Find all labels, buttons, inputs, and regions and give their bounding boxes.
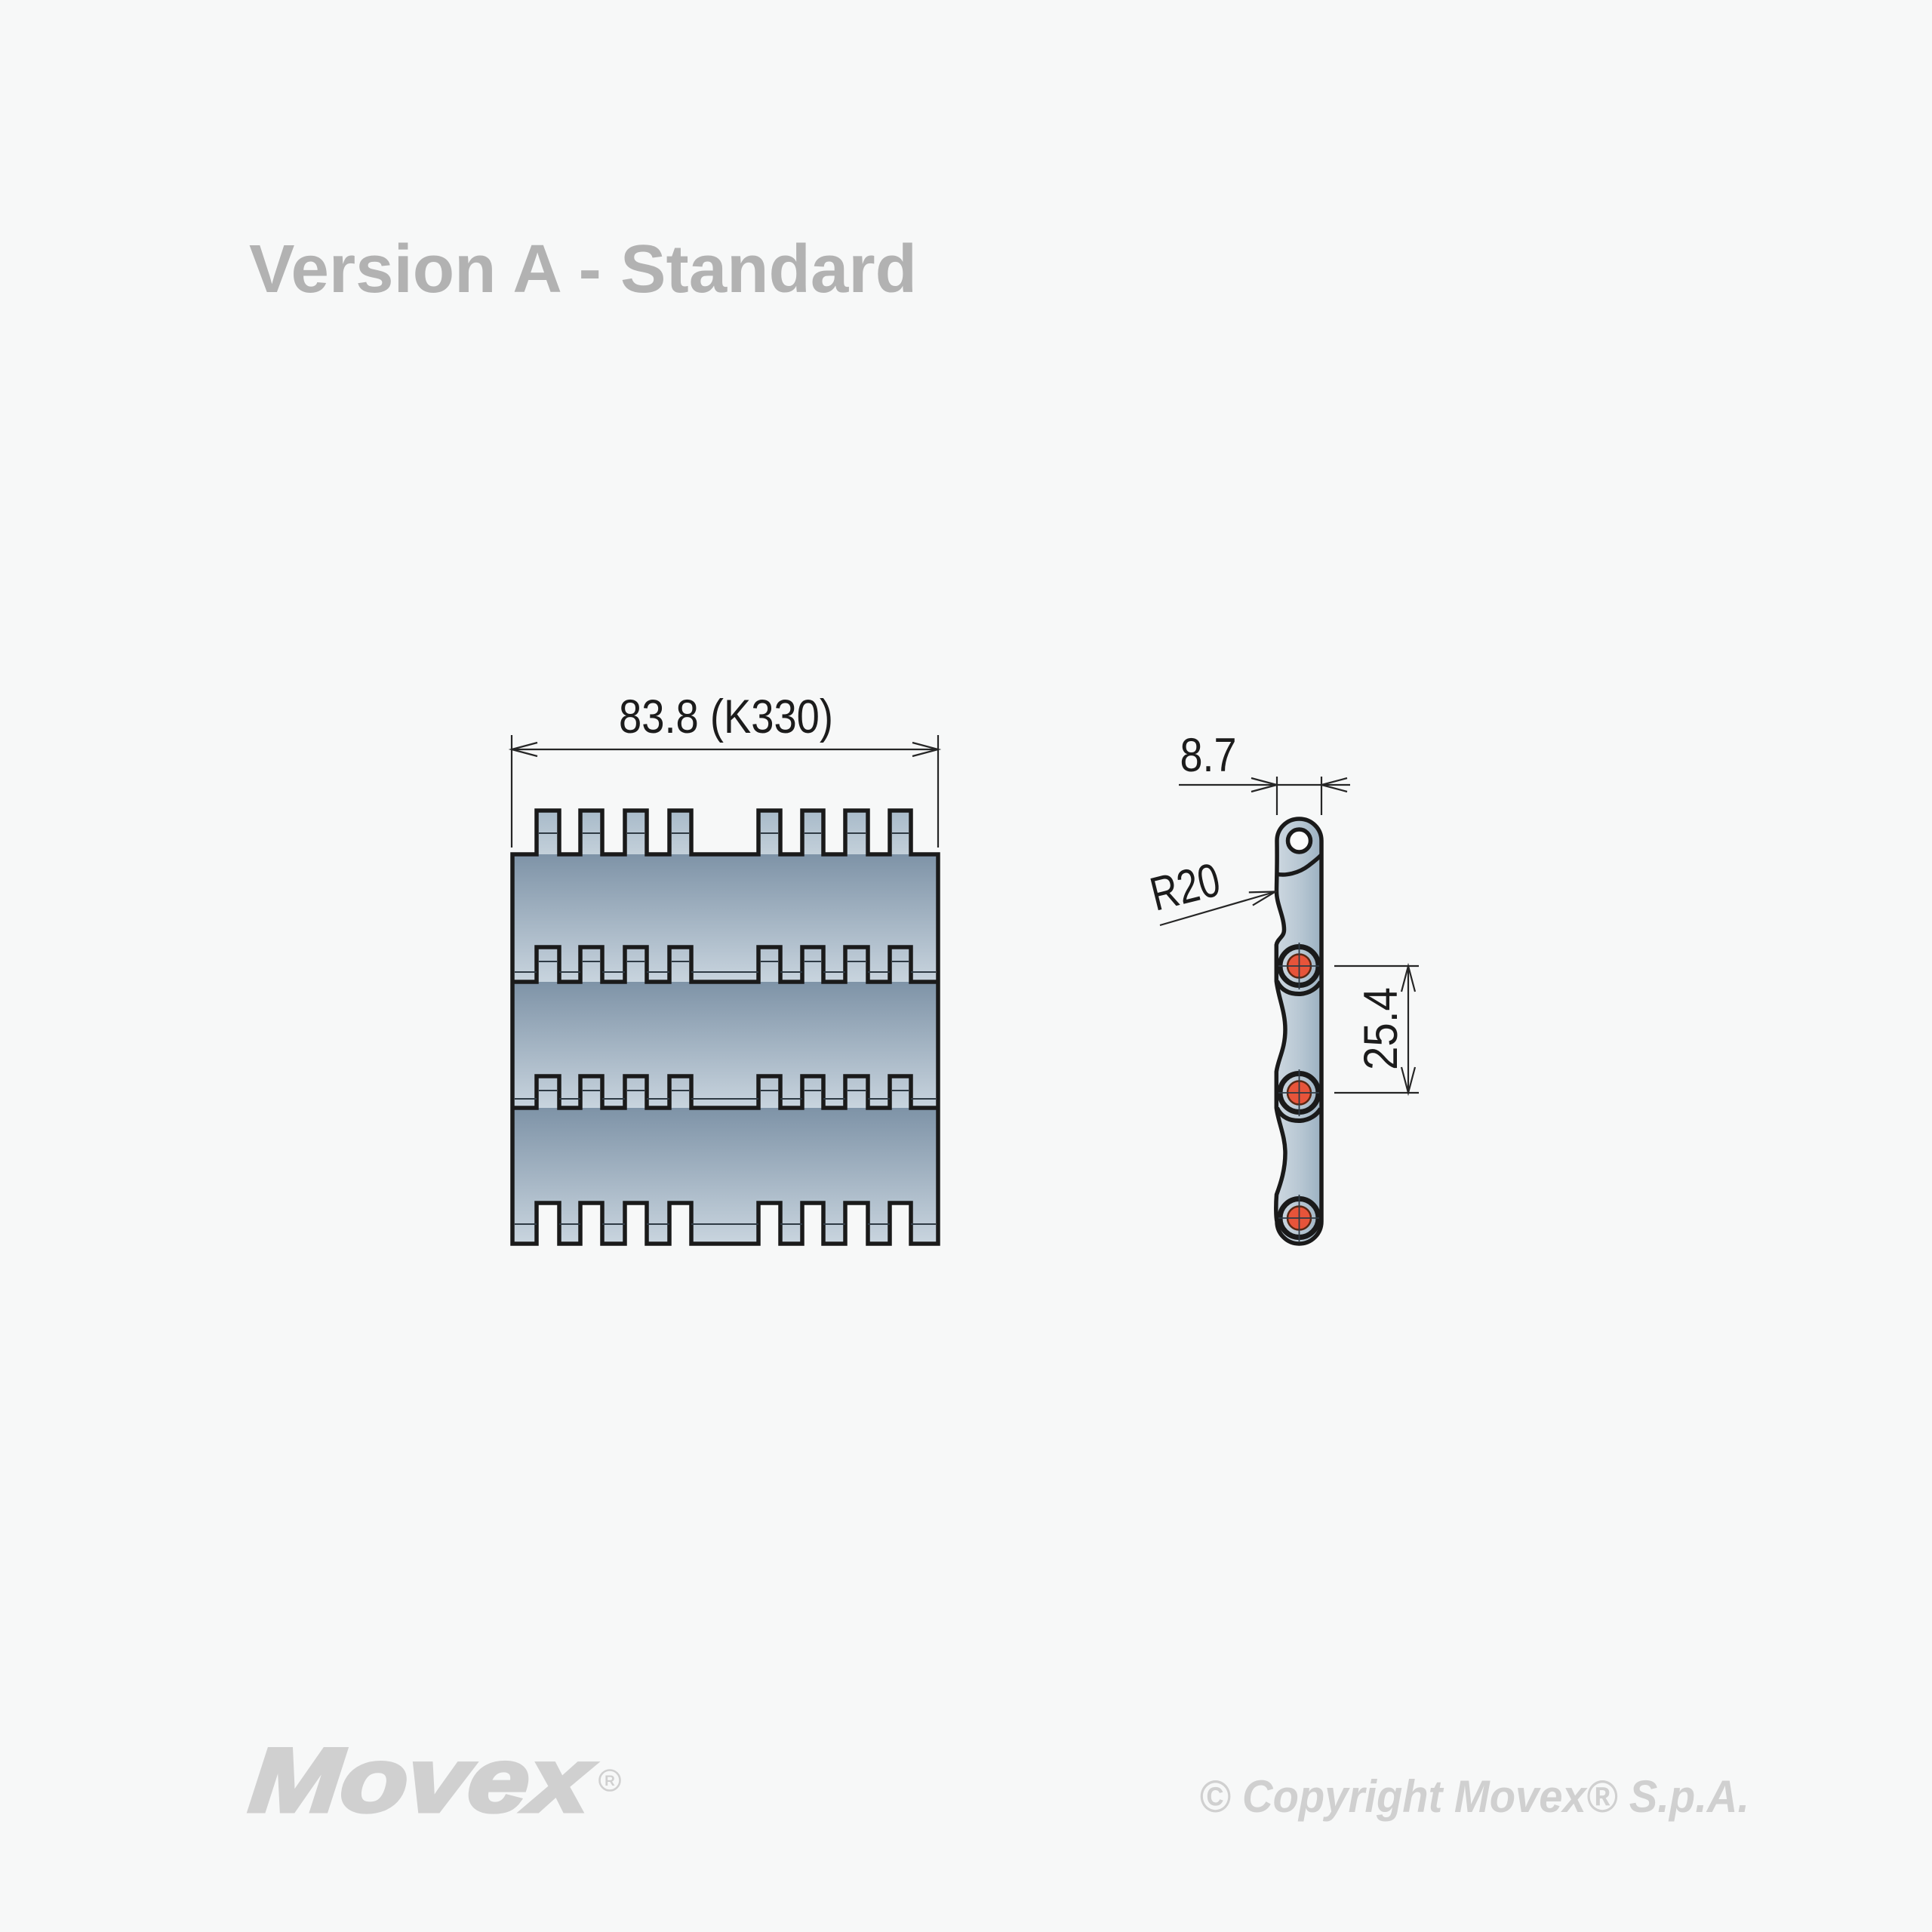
svg-text:Movex: Movex [246, 1730, 598, 1831]
svg-text:83.8 (K330): 83.8 (K330) [619, 691, 833, 743]
svg-text:R: R [605, 1774, 615, 1789]
svg-text:25.4: 25.4 [1355, 987, 1407, 1070]
svg-text:8.7: 8.7 [1180, 729, 1237, 782]
svg-text:© Copyright Movex® S.p.A.: © Copyright Movex® S.p.A. [1199, 1771, 1749, 1822]
svg-text:Version A - Standard: Version A - Standard [249, 232, 917, 307]
